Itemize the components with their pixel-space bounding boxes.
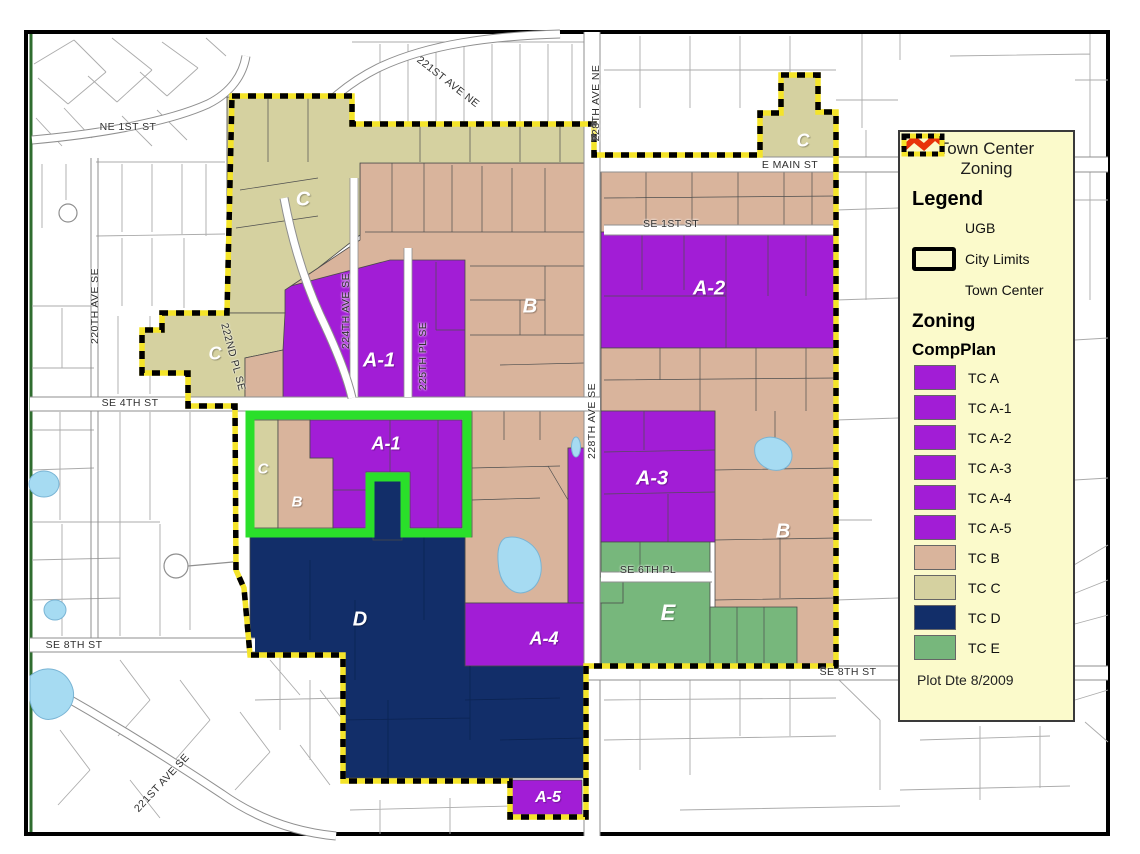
- cul-de-sac: [59, 204, 77, 222]
- legend-compplan-row: TC A-5: [900, 513, 1073, 543]
- compplan-swatch: [914, 635, 956, 660]
- compplan-label: TC A-3: [968, 460, 1012, 476]
- compplan-label: TC A: [968, 370, 999, 386]
- legend-compplan-row: TC A-1: [900, 393, 1073, 423]
- compplan-swatch: [914, 575, 956, 600]
- compplan-label: TC A-1: [968, 400, 1012, 416]
- city-limits-box-icon: [912, 247, 960, 271]
- legend-item-ugb: UGB: [900, 213, 1073, 244]
- legend-compplan-row: TC D: [900, 603, 1073, 633]
- zone-tc-b-northeast: [601, 172, 836, 232]
- compplan-label: TC A-2: [968, 430, 1012, 446]
- legend-panel: Town Center Zoning Legend UGB City Limit…: [898, 130, 1075, 722]
- map-page: 221ST AVE NENE 1ST ST228TH AVE NEE MAIN …: [0, 0, 1140, 854]
- cul-de-sac: [164, 554, 188, 578]
- zone-tc-c-citylimits: [254, 420, 278, 528]
- zone-tc-b-wedge: [245, 350, 283, 397]
- compplan-swatch: [914, 485, 956, 510]
- zone-tc-d-notch: [373, 478, 402, 540]
- zone-tc-a4: [465, 603, 584, 666]
- zoning-heading: Zoning: [912, 311, 1073, 333]
- zone-tc-e-south: [710, 607, 797, 666]
- compplan-swatch: [914, 395, 956, 420]
- compplan-label: TC B: [968, 550, 1000, 566]
- compplan-heading: CompPlan: [912, 340, 1073, 360]
- legend-compplan-row: TC A-4: [900, 483, 1073, 513]
- compplan-swatch: [914, 425, 956, 450]
- compplan-swatch: [914, 605, 956, 630]
- zone-tc-a-strip: [568, 448, 584, 603]
- compplan-swatch: [914, 515, 956, 540]
- legend-item-label: UGB: [965, 220, 995, 236]
- legend-item-label: Town Center: [965, 282, 1044, 298]
- zone-tc-a3: [601, 411, 715, 542]
- legend-compplan-row: TC A: [900, 363, 1073, 393]
- legend-compplan-row: TC B: [900, 543, 1073, 573]
- compplan-swatch: [914, 455, 956, 480]
- map-title-line2: Zoning: [900, 159, 1073, 179]
- zone-tc-a5: [512, 780, 582, 816]
- zone-tc-e: [601, 542, 710, 666]
- legend-compplan-row: TC A-3: [900, 453, 1073, 483]
- legend-compplan-row: TC C: [900, 573, 1073, 603]
- compplan-label: TC A-5: [968, 520, 1012, 536]
- zone-tc-a2: [601, 232, 836, 348]
- compplan-label: TC C: [968, 580, 1001, 596]
- compplan-label: TC E: [968, 640, 1000, 656]
- legend-compplan-row: TC A-2: [900, 423, 1073, 453]
- compplan-label: TC D: [968, 610, 1001, 626]
- compplan-label: TC A-4: [968, 490, 1012, 506]
- legend-item-city-limits: City Limits: [900, 244, 1073, 275]
- legend-compplan-row: TC E: [900, 633, 1073, 663]
- compplan-swatch: [914, 545, 956, 570]
- compplan-swatch: [914, 365, 956, 390]
- legend-item-town-center: Town Center: [900, 275, 1073, 306]
- legend-item-label: City Limits: [965, 251, 1030, 267]
- compplan-list: TC ATC A-1TC A-2TC A-3TC A-4TC A-5TC BTC…: [900, 363, 1073, 663]
- legend-heading: Legend: [912, 188, 1073, 211]
- plot-date: Plot Dte 8/2009: [917, 672, 1073, 688]
